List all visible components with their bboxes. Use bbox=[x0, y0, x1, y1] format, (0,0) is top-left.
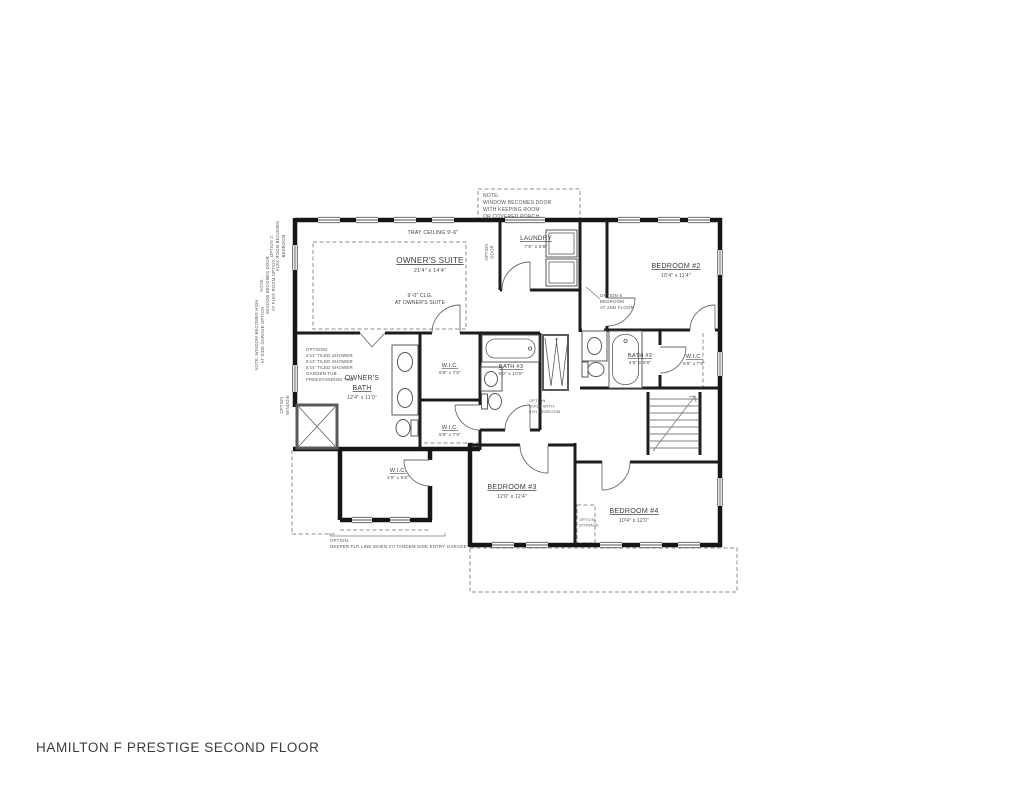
toilet-owners bbox=[396, 420, 410, 437]
wall-wic-room bbox=[340, 448, 432, 520]
option-storage-line1: OPTION bbox=[579, 518, 595, 522]
door-bath3 bbox=[505, 405, 530, 430]
door-wic-bed3 bbox=[404, 460, 430, 486]
bifold-doors bbox=[545, 338, 568, 386]
option-garage-line2: DEEPER FLR LINE WHEN 2'0 TANDEM SIDE ENT… bbox=[330, 544, 467, 549]
room-label-bedroom3: BEDROOM #3 bbox=[487, 482, 536, 491]
floor-plan-canvas: NOTE: WINDOW BECOMES DOOR WITH KEEPING R… bbox=[0, 0, 1024, 791]
tray-ceiling-label: TRAY CEILING 9'-6" bbox=[408, 230, 459, 236]
sink-bath2 bbox=[588, 338, 602, 355]
left-note-top-line1: OPTION 2: bbox=[269, 235, 274, 258]
bath-options-line4: 5'x4' TILED SHOWER bbox=[306, 365, 353, 370]
clg-note-line1: 9'-0" CLG. bbox=[407, 293, 432, 299]
option-bed5-line3: AT 2ND FLOOR bbox=[600, 305, 634, 310]
floor-plan-sheet: NOTE: WINDOW BECOMES DOOR WITH KEEPING R… bbox=[0, 0, 1024, 791]
door-wic-owner2 bbox=[455, 405, 480, 430]
room-dims-bedroom2: 10'4" x 11'4" bbox=[661, 273, 691, 279]
left-note-owner-line2: WINDOW bbox=[285, 395, 290, 415]
door-laundry bbox=[502, 262, 530, 290]
laundry-note-line1: OPTION bbox=[484, 243, 489, 260]
left-note-mid-line3: AT FLEX ROOM OPTION bbox=[271, 259, 276, 311]
left-note-low-line2: AT SIDE GARAGE OPTION bbox=[260, 307, 265, 363]
option-bed5-line1: OPTION 5 bbox=[600, 293, 622, 298]
left-note-top-line3: BEDROOM bbox=[281, 234, 286, 257]
sink-owners-2 bbox=[398, 389, 413, 408]
sink-bath3 bbox=[485, 372, 498, 387]
left-note-low-line1: NOTE: WINDOW BECOMES HIGH bbox=[254, 299, 259, 370]
door-bedroom4 bbox=[602, 462, 630, 490]
room-label-bedroom4: BEDROOM #4 bbox=[609, 506, 658, 515]
dryer bbox=[546, 259, 577, 286]
wall-bedroom4-top-left bbox=[575, 443, 720, 545]
toilet-tank-bath2 bbox=[582, 362, 588, 377]
top-note-line4: OR COVERED PORCH bbox=[483, 214, 539, 220]
option-storage-line2: STORAGE bbox=[579, 524, 599, 528]
door-wic-bed2 bbox=[660, 347, 686, 373]
toilet-bath3 bbox=[489, 394, 502, 410]
stair-treads bbox=[650, 399, 700, 448]
room-label-owners-bath-2: BATH bbox=[353, 385, 372, 392]
room-dims-bath3: 5'0" x 10'0" bbox=[498, 371, 523, 376]
room-dims-wic-owner1: 6'8" x 7'8" bbox=[439, 370, 461, 375]
room-dims-bedroom3: 12'0" x 12'4" bbox=[497, 494, 527, 500]
door-bedroom3 bbox=[520, 445, 548, 473]
toilet-tank-bath3 bbox=[482, 394, 488, 409]
left-note-mid-line2: WINDOW BECOMES DOOR bbox=[265, 256, 270, 314]
room-dims-owners-bath: 12'4" x 11'0" bbox=[347, 395, 377, 401]
option-bed5-line2: BEDROOM bbox=[600, 299, 624, 304]
room-label-wic-owner2: W.I.C. bbox=[442, 425, 459, 431]
leader-option-bed5 bbox=[586, 287, 600, 299]
room-dims-laundry: 7'6" x 5'8" bbox=[524, 244, 547, 250]
room-dims-bath2: 4'8" x 9'8" bbox=[629, 360, 651, 365]
top-note-line3: WITH KEEPING ROOM bbox=[483, 207, 540, 213]
room-dims-wic-bed3: 4'6" x 5'8" bbox=[387, 475, 409, 480]
garage-option-outline bbox=[292, 450, 430, 534]
sheet-title: HAMILTON F PRESTIGE SECOND FLOOR bbox=[36, 740, 320, 755]
room-label-laundry: LAUNDRY bbox=[520, 235, 552, 242]
room-label-wic-owner1: W.I.C. bbox=[442, 363, 459, 369]
room-label-bedroom2: BEDROOM #2 bbox=[651, 261, 700, 270]
stair-arrow bbox=[653, 396, 696, 451]
option-door-line3: 5TH BEDROOM bbox=[529, 409, 561, 414]
option-door-line2: DOOR WITH bbox=[529, 404, 554, 409]
top-note-line2: WINDOW BECOMES DOOR bbox=[483, 200, 552, 206]
bracket-option-garage bbox=[330, 533, 445, 536]
bath-options-line2: 4'x3' TILED SHOWER bbox=[306, 353, 353, 358]
room-dims-wic-owner2: 5'8" x 7'8" bbox=[439, 432, 461, 437]
toilet-tank-owners bbox=[411, 420, 418, 436]
room-label-wic-bed3: W.I.C. bbox=[390, 468, 407, 474]
bath-options-line6: FREESTANDING TUB bbox=[306, 377, 353, 382]
room-label-owners-suite: OWNER'S SUITE bbox=[396, 256, 464, 265]
option-garage-line1: OPTION: bbox=[330, 538, 349, 543]
left-note-owner-line1: OPTION bbox=[279, 396, 284, 413]
room-dims-wic-bed2: 6'8" x 7'8" bbox=[683, 361, 705, 366]
room-label-wic-bed2: W.I.C. bbox=[686, 354, 703, 360]
left-note-mid-line1: NOTE: bbox=[259, 278, 264, 292]
door-bedroom2-wic bbox=[690, 305, 715, 330]
door-owners-bath-double bbox=[360, 333, 385, 347]
sink-owners-1 bbox=[398, 353, 413, 372]
laundry-note-line2: DOOR bbox=[490, 245, 495, 258]
room-label-bath2: BATH #2 bbox=[628, 353, 653, 359]
room-dims-owners-suite: 21'4" x 14'4" bbox=[414, 268, 446, 274]
bath-options-line5: GARDEN TUB bbox=[306, 371, 337, 376]
room-label-bath3: BATH #3 bbox=[499, 364, 524, 370]
top-note-line1: NOTE: bbox=[483, 193, 499, 199]
bath-options-line3: 5'x3' TILED SHOWER bbox=[306, 359, 353, 364]
room-dims-bedroom4: 10'4" x 12'0" bbox=[619, 518, 649, 524]
toilet-bath2 bbox=[588, 363, 604, 377]
option-door-line1: OPTION bbox=[529, 398, 546, 403]
linen-closet bbox=[543, 335, 568, 390]
bath-options-line1: OPTIONS: bbox=[306, 347, 329, 352]
clg-note-line2: AT OWNER'S SUITE bbox=[395, 300, 446, 306]
optional-extension-outline bbox=[470, 548, 737, 592]
